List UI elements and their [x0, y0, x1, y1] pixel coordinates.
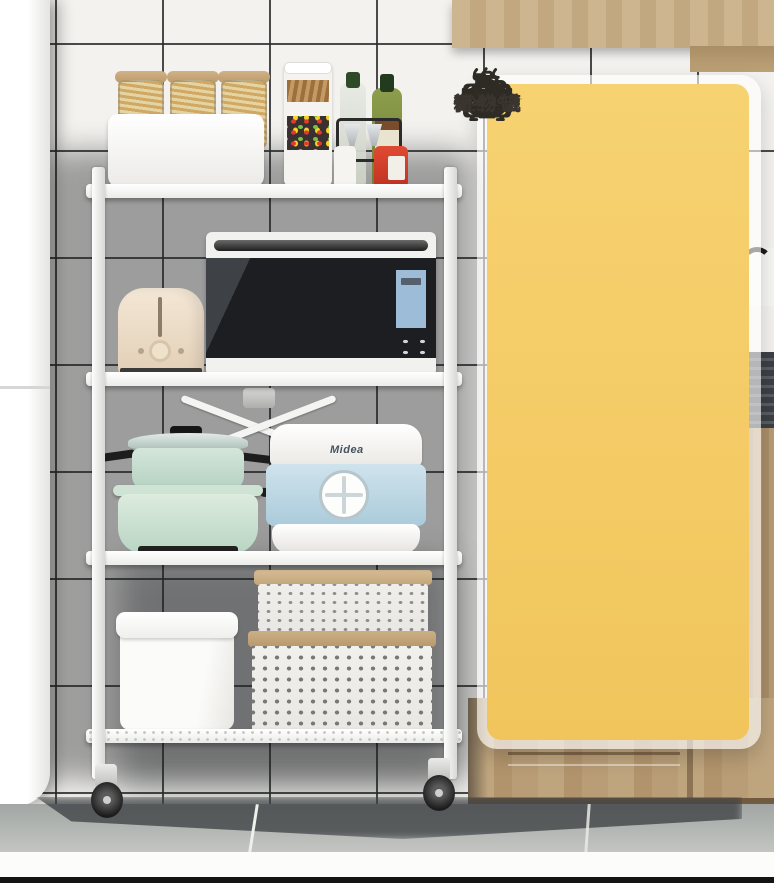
perforated-basket — [252, 646, 432, 732]
toaster-dial — [149, 340, 171, 362]
bottom-black-bar — [0, 877, 774, 883]
upper-wood-cabinet — [452, 0, 774, 48]
lower-pot — [118, 494, 258, 554]
rice-cooker-brand: Midea — [330, 444, 400, 456]
caster-hub — [103, 796, 111, 804]
caster-hub — [435, 789, 443, 797]
feature-label: 储物罐 — [449, 89, 526, 116]
basket-wood-lid — [254, 570, 432, 585]
rack-folding-hinge — [243, 388, 275, 408]
rack-shelf — [86, 372, 462, 386]
fridge-door-seam — [0, 386, 50, 389]
toaster-button — [138, 348, 144, 354]
canister-contents — [287, 80, 329, 102]
white-lidded-box — [120, 634, 234, 730]
white-base-strip — [0, 852, 774, 877]
cabinet-door-groove — [508, 752, 680, 766]
kitchen-product-photo: Midea — [0, 0, 774, 883]
toaster-button — [178, 348, 184, 354]
sauce-bottle — [334, 146, 356, 188]
rack-shelf — [86, 184, 462, 198]
rack-shelf — [86, 729, 462, 743]
candy-canister — [287, 116, 329, 150]
bottle-cap — [346, 72, 360, 88]
feature-panel: 微波炉 烤箱 — [487, 84, 749, 740]
rack-post — [92, 167, 105, 779]
dial-spoke — [325, 493, 363, 497]
fridge — [0, 0, 50, 806]
canister-lid — [284, 62, 332, 74]
upper-wood-cabinet-corner — [690, 46, 774, 72]
white-storage-bin — [108, 114, 264, 188]
oven-buttons — [393, 334, 431, 356]
rack-post — [444, 167, 457, 779]
rack-shelf — [86, 551, 462, 565]
upper-pot — [132, 448, 244, 490]
bottle-cap — [380, 74, 394, 92]
red-jar-label — [388, 156, 405, 180]
white-box-lid — [116, 612, 238, 638]
oven-display-digits — [401, 278, 421, 285]
toaster-lever — [158, 297, 162, 337]
oven-handle — [214, 240, 428, 251]
rice-cooker-base — [272, 524, 420, 554]
basket-wood-lid — [248, 631, 436, 647]
